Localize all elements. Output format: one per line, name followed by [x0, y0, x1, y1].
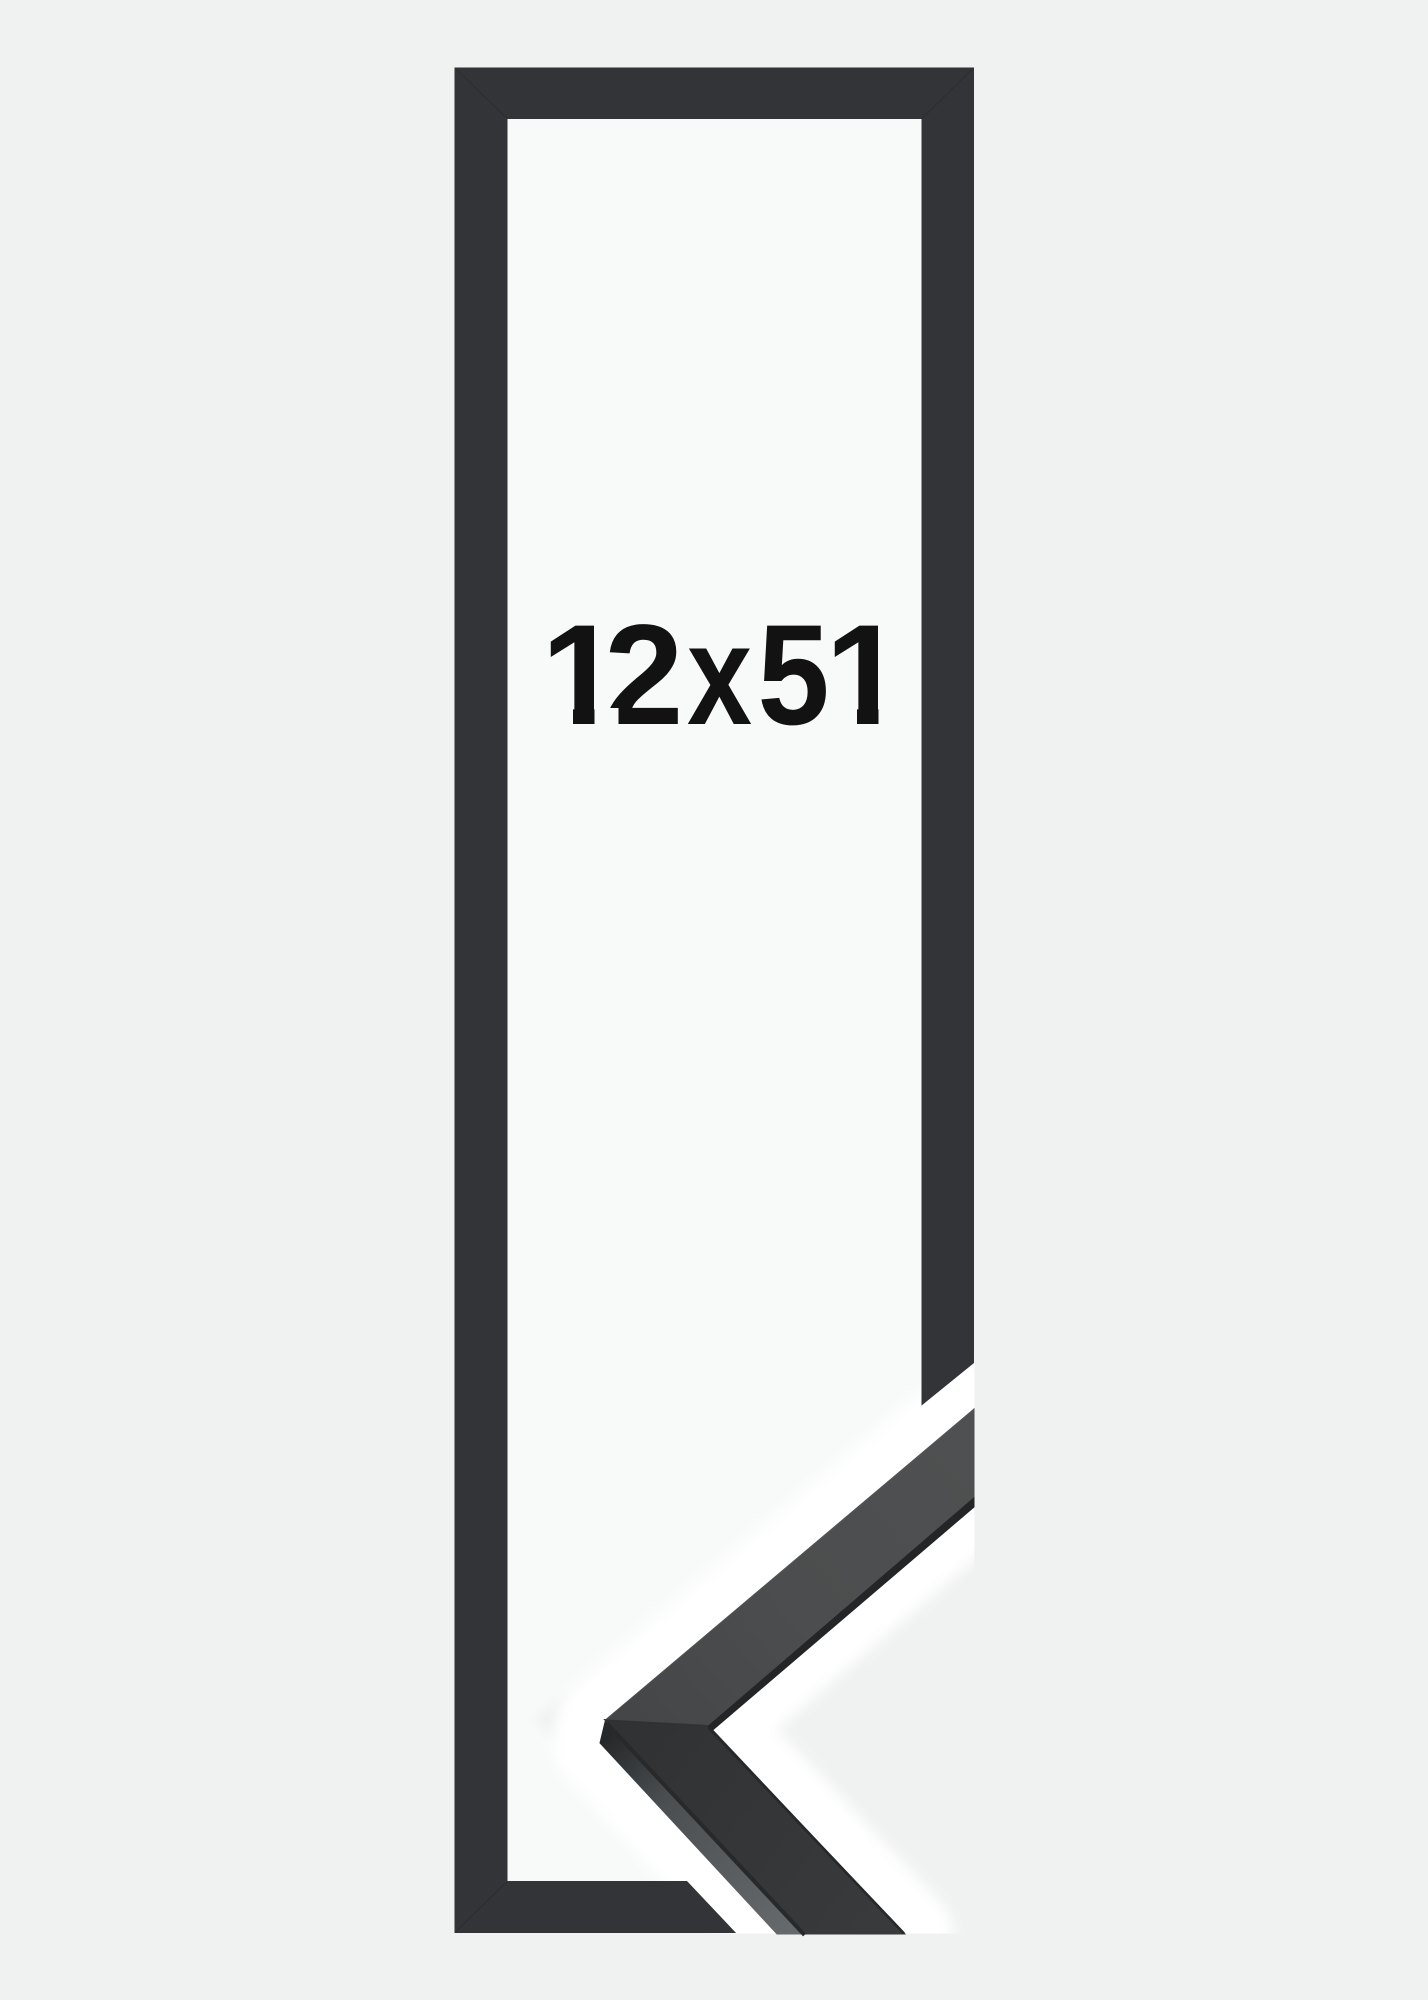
- svg-text:1: 1: [825, 596, 905, 755]
- svg-text:2: 2: [604, 596, 684, 755]
- svg-text:x: x: [687, 596, 752, 755]
- svg-text:5: 5: [758, 596, 830, 755]
